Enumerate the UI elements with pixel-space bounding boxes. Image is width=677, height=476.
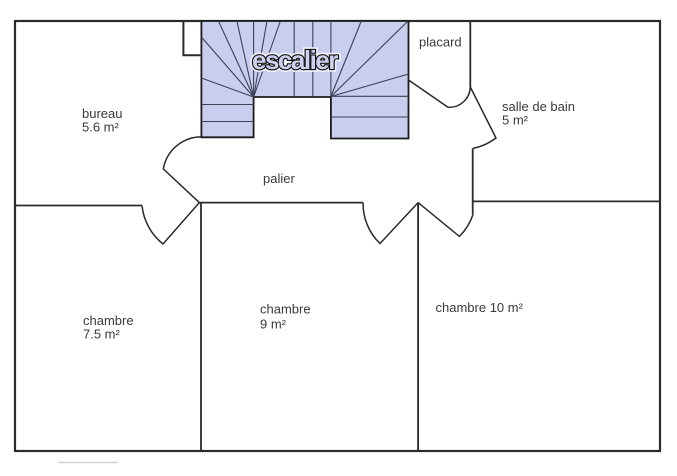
svg-text:palier: palier [263,171,295,186]
svg-text:7.5 m²: 7.5 m² [83,327,121,342]
svg-text:escalier: escalier [252,45,338,75]
svg-text:placard: placard [419,35,462,50]
svg-text:5 m²: 5 m² [502,113,529,128]
svg-text:5.6 m²: 5.6 m² [82,120,120,135]
svg-text:chambre 10 m²: chambre 10 m² [436,300,524,315]
svg-text:chambre: chambre [260,302,311,317]
svg-text:9 m²: 9 m² [260,317,287,332]
